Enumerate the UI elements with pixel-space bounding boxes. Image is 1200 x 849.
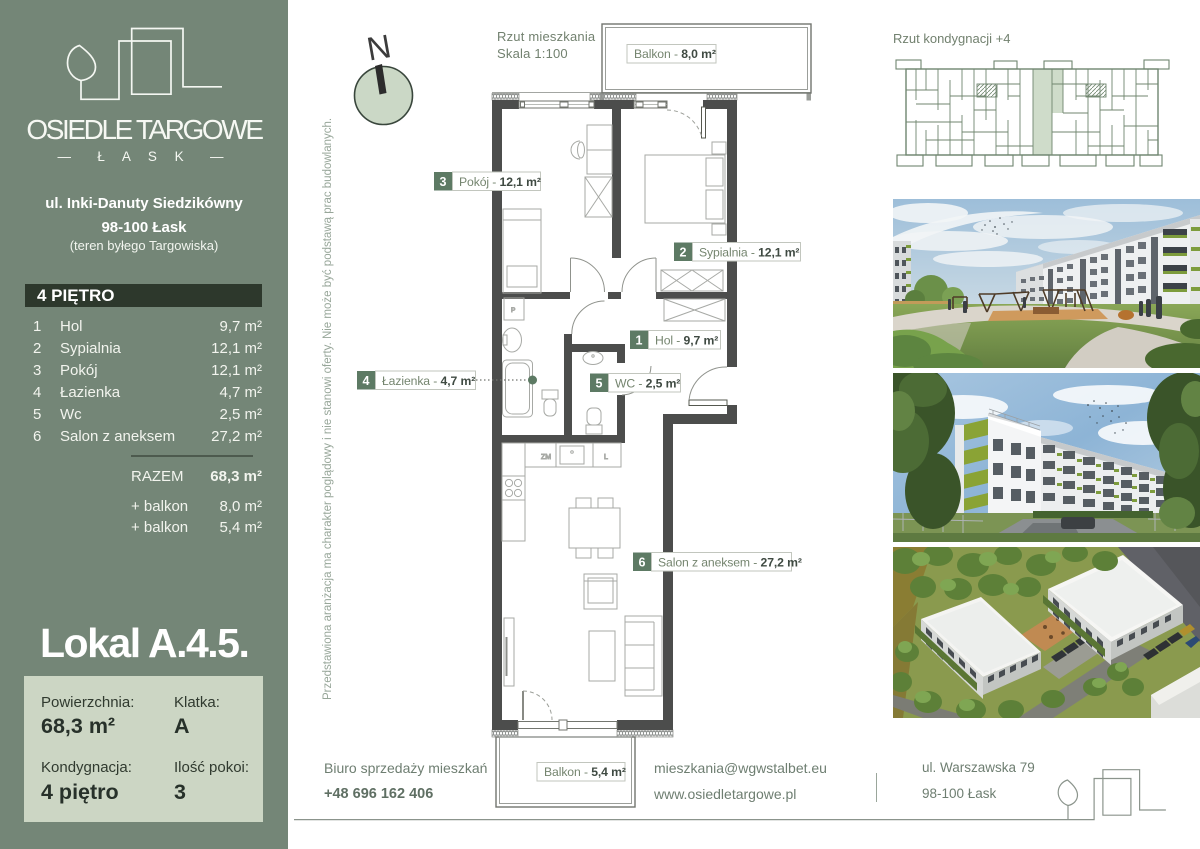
svg-text:4: 4 <box>363 374 370 388</box>
svg-text:Sypialnia - 12,1 m²: Sypialnia - 12,1 m² <box>699 246 799 260</box>
svg-text:Rzut mieszkania: Rzut mieszkania <box>497 29 596 44</box>
svg-text:WC - 2,5 m²: WC - 2,5 m² <box>615 377 680 391</box>
svg-text:3: 3 <box>440 175 447 189</box>
svg-text:Pokój - 12,1 m²: Pokój - 12,1 m² <box>459 175 541 189</box>
svg-text:2: 2 <box>680 246 687 260</box>
svg-text:Balkon - 8,0 m²: Balkon - 8,0 m² <box>634 47 716 61</box>
svg-text:5: 5 <box>596 377 603 391</box>
svg-text:Łazienka - 4,7 m²: Łazienka - 4,7 m² <box>382 374 475 388</box>
svg-text:6: 6 <box>639 556 646 570</box>
svg-text:ZM: ZM <box>541 454 551 461</box>
svg-text:L: L <box>604 454 608 461</box>
svg-text:Skala 1:100: Skala 1:100 <box>497 46 568 61</box>
svg-text:P: P <box>511 307 515 314</box>
svg-text:N: N <box>364 27 394 68</box>
svg-text:1: 1 <box>636 334 643 348</box>
svg-text:Salon z aneksem - 27,2 m²: Salon z aneksem - 27,2 m² <box>658 556 802 570</box>
svg-text:Hol - 9,7 m²: Hol - 9,7 m² <box>655 334 718 348</box>
